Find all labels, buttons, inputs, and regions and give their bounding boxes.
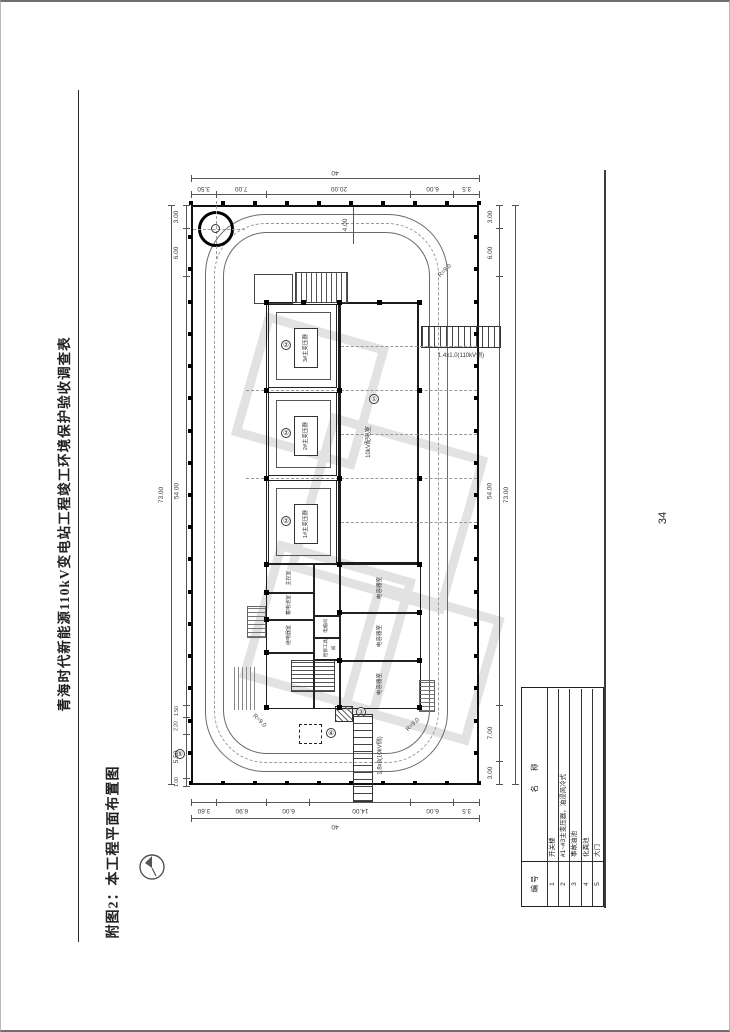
fence-post xyxy=(474,461,478,465)
column-dot xyxy=(264,650,269,655)
dim-top-tick xyxy=(453,191,454,198)
dim-top-total-label: 40 xyxy=(191,168,479,176)
fence-post xyxy=(188,751,192,755)
fence-post xyxy=(474,235,478,239)
dim-left-tick xyxy=(183,276,190,277)
fence-post xyxy=(474,557,478,561)
fence-post xyxy=(221,781,225,785)
dim-top-line xyxy=(191,194,479,195)
dim-left-tick xyxy=(183,734,190,735)
transformer-marker: ② xyxy=(281,340,291,350)
dim-right-label: 6.00 xyxy=(487,229,495,277)
column-dot xyxy=(301,300,306,305)
fence-post xyxy=(474,525,478,529)
column-dot xyxy=(417,476,422,481)
axis-line xyxy=(341,434,477,435)
dim-left-label: 6.00 xyxy=(173,229,181,277)
room-label: 继电器室 xyxy=(285,621,293,649)
dim-left-tick xyxy=(183,778,190,779)
fence-post xyxy=(474,654,478,658)
fence-post xyxy=(188,429,192,433)
dim-bottom-line xyxy=(191,802,479,803)
wall xyxy=(339,660,421,662)
dim-bottom-label: 6.00 xyxy=(411,806,454,814)
fence-post xyxy=(413,781,417,785)
dim-left-line xyxy=(186,205,187,787)
column-dot xyxy=(264,590,269,595)
column-dot xyxy=(417,610,422,615)
dim-top-tick xyxy=(479,191,480,198)
fence-post xyxy=(188,686,192,690)
dim-right-line xyxy=(499,205,500,785)
dim-left-tick xyxy=(183,717,190,718)
transformer-label: 1#主变压器 xyxy=(302,507,310,541)
dim-left-total-tick xyxy=(168,784,175,785)
dim-bottom-label: 14.00 xyxy=(310,806,411,814)
dim-bottom-tick xyxy=(453,799,454,806)
fence-post xyxy=(253,201,257,205)
drawing-detail-layer: 3.507.0020.006.003.5403.606.906.0014.006… xyxy=(1,2,730,1032)
dim-bottom-total-tick xyxy=(191,815,192,822)
fence-post xyxy=(474,751,478,755)
fence-post xyxy=(317,781,321,785)
fence-post xyxy=(188,525,192,529)
fence-post xyxy=(253,781,257,785)
column-dot xyxy=(264,705,269,710)
column-dot xyxy=(377,300,382,305)
fence-post xyxy=(188,300,192,304)
dim-right-label: 7.00 xyxy=(487,706,495,762)
dim-bottom-label: 6.00 xyxy=(267,806,310,814)
dim-top-tick xyxy=(216,191,217,198)
dim-left-total-tick xyxy=(168,205,175,206)
fence-post xyxy=(445,201,449,205)
axis-line xyxy=(341,478,477,479)
fence-post xyxy=(221,201,225,205)
fence-post xyxy=(413,201,417,205)
fence-post xyxy=(474,622,478,626)
dim-bottom-tick xyxy=(410,799,411,806)
column-dot xyxy=(264,617,269,622)
room-label: 电容器室 xyxy=(376,570,384,606)
fence-post xyxy=(189,781,193,785)
column-dot xyxy=(337,300,342,305)
fence-post xyxy=(474,267,478,271)
fence-post xyxy=(188,235,192,239)
wall xyxy=(313,659,339,661)
fence-post xyxy=(188,267,192,271)
fence-post xyxy=(188,654,192,658)
transformer-label: 2#主变压器 xyxy=(302,419,310,453)
dim-right-tick xyxy=(496,761,503,762)
dim-left-label: 1.50 xyxy=(173,706,181,718)
dim-right-total-line xyxy=(515,205,516,785)
axis-line xyxy=(341,346,477,347)
dim-top-total-tick xyxy=(479,175,480,182)
fence-post xyxy=(477,781,481,785)
fence-post xyxy=(474,429,478,433)
dim-top-tick xyxy=(410,191,411,198)
dim-right-label: 54.00 xyxy=(487,277,495,706)
dim-left-tick xyxy=(183,705,190,706)
dim-top-label: 3.50 xyxy=(191,184,216,192)
column-dot xyxy=(417,300,422,305)
fence-post xyxy=(445,781,449,785)
fence-post xyxy=(349,201,353,205)
dim-bottom-total-tick xyxy=(479,815,480,822)
column-dot xyxy=(417,658,422,663)
dim-right-total-tick xyxy=(512,784,519,785)
dim-top-label: 20.00 xyxy=(267,184,411,192)
column-dot xyxy=(337,562,342,567)
room-label: 检修工具间 xyxy=(322,637,330,659)
wall xyxy=(266,652,313,654)
dim-bottom-label: 3.5 xyxy=(454,806,479,814)
transformer-marker: ② xyxy=(281,428,291,438)
dim-top-total-tick xyxy=(191,175,192,182)
column-dot xyxy=(264,476,269,481)
dim-left-tick xyxy=(183,228,190,229)
column-dot xyxy=(337,658,342,663)
column-dot xyxy=(337,705,342,710)
column-dot xyxy=(337,388,342,393)
dim-top-total-line xyxy=(191,178,479,179)
fence-post xyxy=(381,201,385,205)
fence-post xyxy=(188,557,192,561)
column-dot xyxy=(264,388,269,393)
column-dot xyxy=(264,300,269,305)
fence-post xyxy=(381,781,385,785)
dim-left-label: 3.00 xyxy=(173,205,181,229)
fence-post xyxy=(474,332,478,336)
dim-bottom-tick xyxy=(266,799,267,806)
dim-right-tick xyxy=(496,205,503,206)
fence-post xyxy=(317,201,321,205)
fence-post xyxy=(474,300,478,304)
fence-post xyxy=(477,201,481,205)
fence-post xyxy=(474,719,478,723)
fence-post xyxy=(474,396,478,400)
fence-post xyxy=(188,396,192,400)
dim-right-tick xyxy=(496,705,503,706)
room-label: 电容器室 xyxy=(376,618,384,654)
dim-top-tick xyxy=(266,191,267,198)
axis-line xyxy=(246,390,339,391)
fence-post xyxy=(188,493,192,497)
column-dot xyxy=(337,476,342,481)
dim-top-label: 3.5 xyxy=(454,184,479,192)
dim-right-tick xyxy=(496,784,503,785)
dim-right-total-label: 73.00 xyxy=(503,205,511,785)
dim-right-total-tick xyxy=(512,205,519,206)
axis-line xyxy=(341,522,477,523)
fence-post xyxy=(285,201,289,205)
dim-left-label: 54.00 xyxy=(173,277,181,706)
fence-post xyxy=(285,781,289,785)
dim-right-label: 3.00 xyxy=(487,205,495,229)
fence-post xyxy=(474,686,478,690)
axis-line xyxy=(341,390,477,391)
fence-post xyxy=(188,461,192,465)
fence-post xyxy=(188,622,192,626)
dim-bottom-tick xyxy=(191,799,192,806)
room-label: 电容器室 xyxy=(376,666,384,702)
dim-left-label: 5.50 xyxy=(173,735,181,779)
room-label: 主控室 xyxy=(285,564,293,592)
dim-bottom-label: 6.90 xyxy=(217,806,267,814)
column-dot xyxy=(264,562,269,567)
dim-bottom-tick xyxy=(216,799,217,806)
transformer-marker: ② xyxy=(281,516,291,526)
column-dot xyxy=(337,610,342,615)
fence-post xyxy=(474,590,478,594)
fence-post xyxy=(188,364,192,368)
wall xyxy=(339,612,421,614)
fence-post xyxy=(474,493,478,497)
fence-post xyxy=(188,719,192,723)
column-dot xyxy=(417,562,422,567)
dim-top-tick xyxy=(191,191,192,198)
fence-post xyxy=(474,364,478,368)
dim-right-label: 3.00 xyxy=(487,761,495,785)
dim-left-tick xyxy=(183,786,190,787)
transformer-label: 3#主变压器 xyxy=(302,331,310,365)
dim-right-tick xyxy=(496,276,503,277)
dim-top-label: 6.00 xyxy=(411,184,454,192)
room-label: 蓄电池室 xyxy=(285,591,293,619)
column-dot xyxy=(417,388,422,393)
fence-post xyxy=(188,590,192,594)
dim-right-tick xyxy=(496,228,503,229)
fence-post xyxy=(188,332,192,336)
wall xyxy=(339,564,341,709)
dim-left-tick xyxy=(183,205,190,206)
dim-bottom-tick xyxy=(309,799,310,806)
dim-left-total-label: 73.00 xyxy=(158,205,166,785)
column-dot xyxy=(417,705,422,710)
dim-left-label: 2.20 xyxy=(173,717,181,734)
fence-post xyxy=(349,781,353,785)
dim-bottom-label: 3.60 xyxy=(191,806,217,814)
dim-bottom-total-line xyxy=(191,818,479,819)
dim-bottom-tick xyxy=(479,799,480,806)
dim-top-label: 7.00 xyxy=(216,184,266,192)
dim-left-total-line xyxy=(171,205,172,785)
dim-bottom-total-label: 40 xyxy=(191,822,479,830)
axis-line xyxy=(246,478,339,479)
document-page: 青海时代新能源110kV变电站工程竣工环境保护验收调查表 附图2：本工程平面布置… xyxy=(0,0,730,1032)
room-label: 电缆间 xyxy=(322,615,330,637)
